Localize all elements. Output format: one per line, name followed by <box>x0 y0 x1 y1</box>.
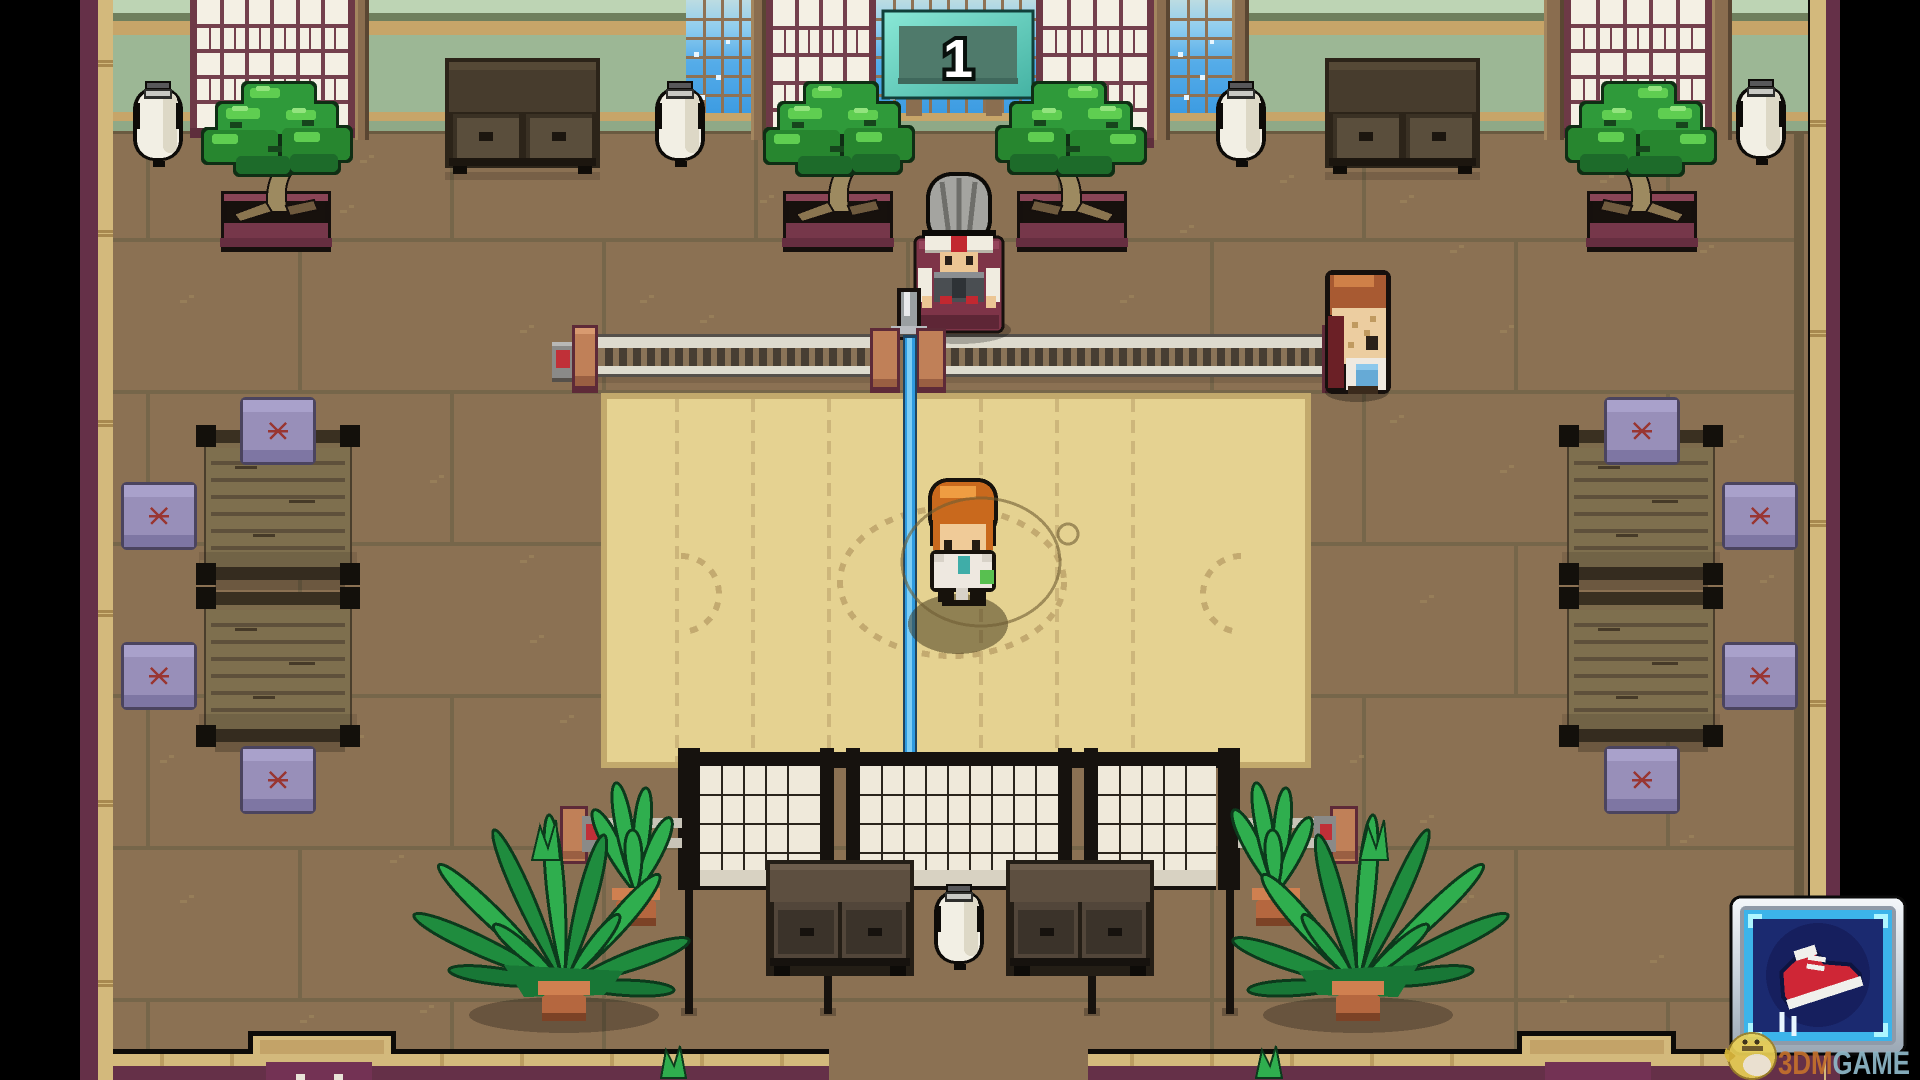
svg-text:1: 1 <box>943 29 973 89</box>
svg-text:3DMGAME: 3DMGAME <box>1778 1045 1910 1080</box>
